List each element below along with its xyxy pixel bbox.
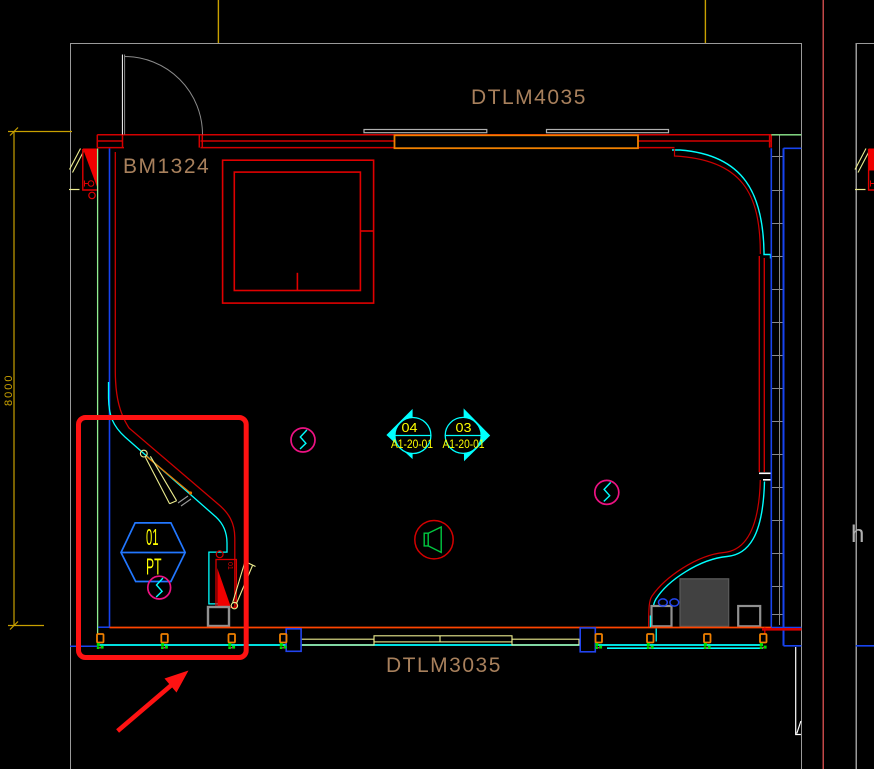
svg-text:04: 04 <box>402 421 418 435</box>
svg-text:BM1324: BM1324 <box>123 155 210 178</box>
svg-text:01: 01 <box>146 524 159 550</box>
svg-text:8000: 8000 <box>3 374 15 406</box>
svg-text:A1-20-01: A1-20-01 <box>443 439 485 451</box>
svg-text:h: h <box>851 521 864 548</box>
svg-text:DTLM4035: DTLM4035 <box>471 86 587 109</box>
svg-text:01: 01 <box>226 562 233 570</box>
svg-text:DTLM3035: DTLM3035 <box>386 654 502 677</box>
svg-text:A1-20-01: A1-20-01 <box>391 439 433 451</box>
svg-text:03: 03 <box>456 421 472 435</box>
